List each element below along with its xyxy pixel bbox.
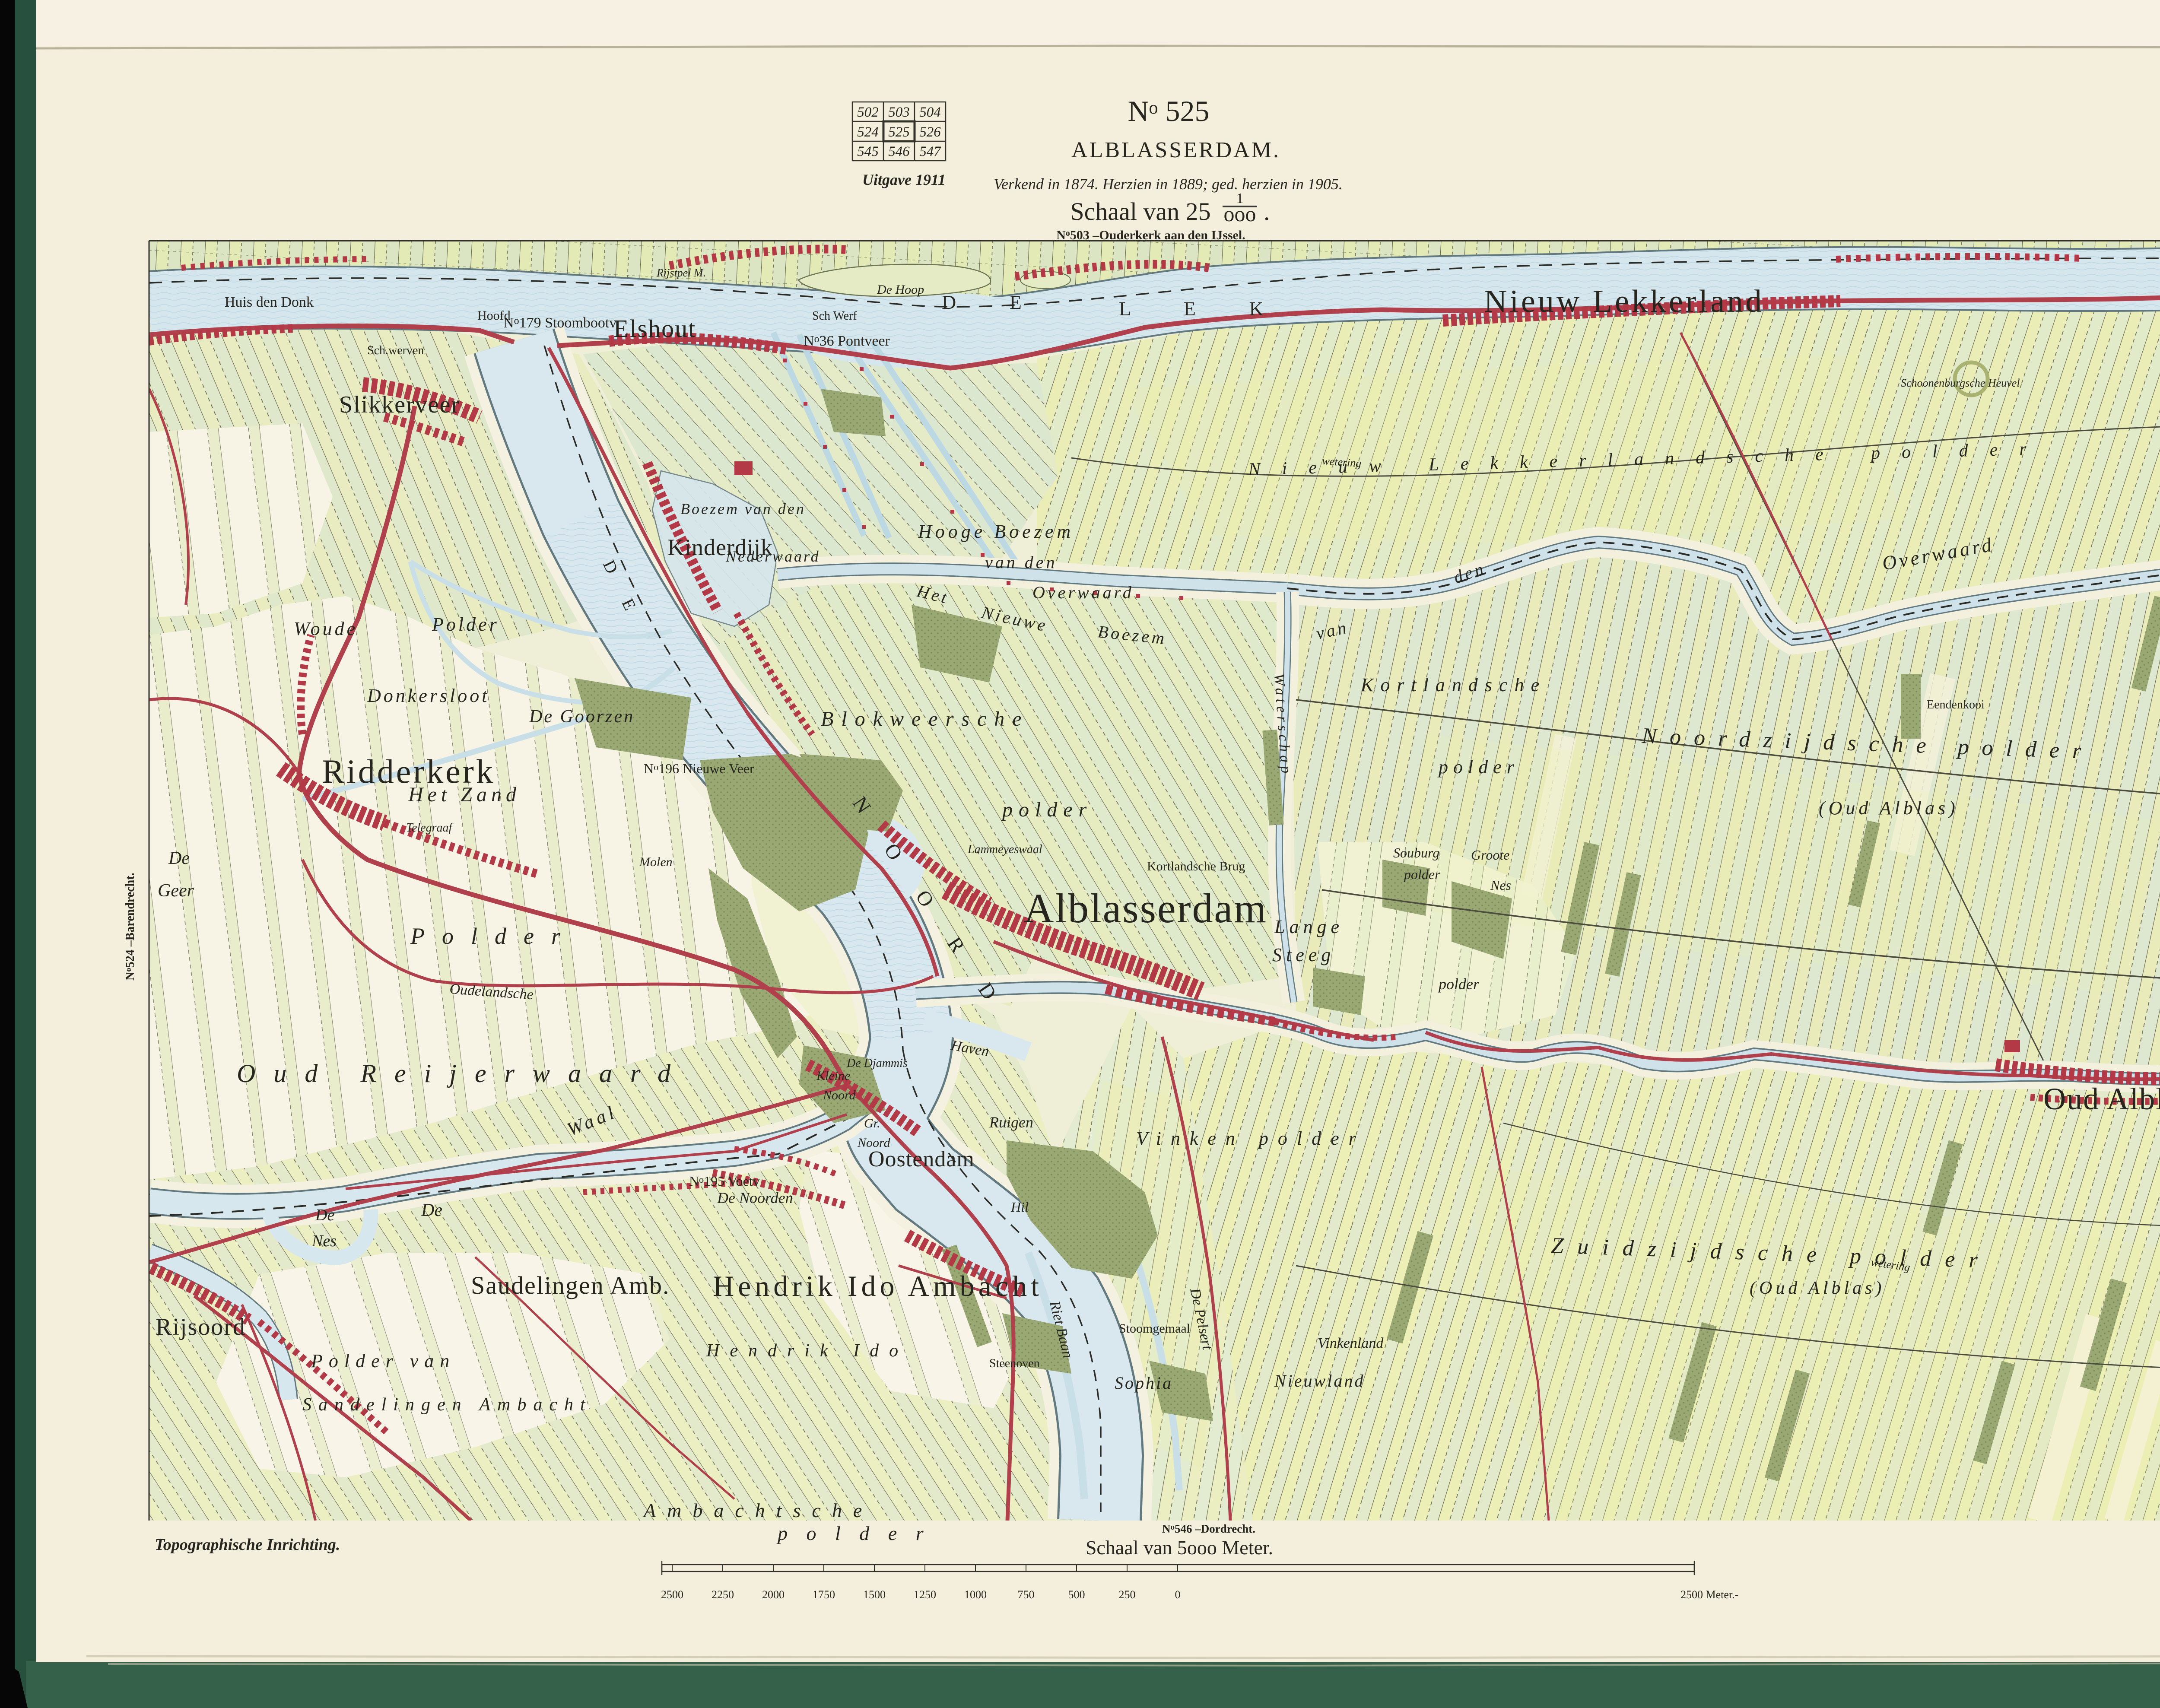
svg-text:Sophia: Sophia xyxy=(1115,1373,1173,1393)
svg-text:Steeg: Steeg xyxy=(1272,944,1335,965)
svg-text:Slikkerveer: Slikkerveer xyxy=(339,391,460,418)
svg-text:Saudelingen Amb.: Saudelingen Amb. xyxy=(471,1271,670,1299)
svg-text:Nes: Nes xyxy=(1490,877,1511,893)
svg-text:Hendrik Ido: Hendrik Ido xyxy=(706,1341,908,1361)
svg-text:Rijsoord: Rijsoord xyxy=(156,1314,246,1340)
svg-text:L E K: L E K xyxy=(1119,298,1288,320)
svg-text:Topographische Inrichting.: Topographische Inrichting. xyxy=(155,1536,340,1554)
svg-text:De Goorzen: De Goorzen xyxy=(529,707,635,727)
svg-text:Het Zand: Het Zand xyxy=(408,783,521,806)
svg-text:polder: polder xyxy=(1437,975,1480,993)
svg-text:Huis den Donk: Huis den Donk xyxy=(225,294,314,310)
svg-text:Vinkenland: Vinkenland xyxy=(1318,1335,1384,1351)
svg-text:Ruigen: Ruigen xyxy=(989,1114,1033,1131)
svg-text:ALBLASSERDAM.: ALBLASSERDAM. xyxy=(1071,138,1280,162)
svg-text:500: 500 xyxy=(1068,1588,1085,1601)
svg-text:No179 Stoombootv: No179 Stoombootv xyxy=(503,315,616,331)
svg-text:Polder: Polder xyxy=(410,923,578,949)
svg-text:524: 524 xyxy=(857,124,879,140)
svg-text:Geer: Geer xyxy=(158,881,194,901)
svg-text:Steenoven: Steenoven xyxy=(989,1357,1040,1370)
svg-text:504: 504 xyxy=(919,105,941,120)
svg-text:No546 –Dordrecht.: No546 –Dordrecht. xyxy=(1162,1522,1255,1535)
svg-text:Noord: Noord xyxy=(857,1136,891,1150)
svg-text:Woude: Woude xyxy=(294,618,358,639)
svg-text:De Djammis: De Djammis xyxy=(846,1057,908,1070)
svg-text:De: De xyxy=(168,848,190,868)
svg-text:No 525: No 525 xyxy=(1128,95,1209,127)
svg-text:Hoofd: Hoofd xyxy=(477,308,511,323)
svg-text:Noord: Noord xyxy=(823,1088,856,1102)
svg-text:p o l d e r: p o l d e r xyxy=(776,1522,931,1544)
svg-text:Lange: Lange xyxy=(1274,916,1344,937)
svg-text:Souburg: Souburg xyxy=(1393,845,1439,860)
svg-text:2500 Meter.-: 2500 Meter.- xyxy=(1680,1588,1738,1601)
svg-text:D E: D E xyxy=(942,291,1046,313)
svg-text:Gr.: Gr. xyxy=(864,1116,880,1130)
svg-text:Alblasserdam: Alblasserdam xyxy=(1024,885,1267,931)
svg-text:Schaal van 25: Schaal van 25 xyxy=(1070,197,1210,225)
svg-text:2250: 2250 xyxy=(712,1588,734,1601)
svg-text:Overwaard: Overwaard xyxy=(1032,583,1134,602)
svg-text:No196 Nieuwe Veer: No196 Nieuwe Veer xyxy=(644,761,754,776)
svg-text:ooo: ooo xyxy=(1224,202,1256,226)
svg-text:Nieuwland: Nieuwland xyxy=(1274,1371,1365,1391)
svg-text:van den: van den xyxy=(985,552,1058,572)
svg-text:Schaal van 5ooo Meter.: Schaal van 5ooo Meter. xyxy=(1086,1537,1273,1559)
svg-text:Stoomgemaal: Stoomgemaal xyxy=(1119,1321,1190,1336)
svg-text:750: 750 xyxy=(1018,1588,1035,1601)
svg-text:0: 0 xyxy=(1175,1588,1181,1601)
svg-text:(Oud Alblas): (Oud Alblas) xyxy=(1750,1278,1885,1298)
svg-text:Kortlandsche: Kortlandsche xyxy=(1360,674,1546,695)
svg-text:Hooge Boezem: Hooge Boezem xyxy=(918,521,1074,542)
svg-text:1250: 1250 xyxy=(914,1588,936,1601)
svg-text:Vinken polder: Vinken polder xyxy=(1136,1128,1366,1149)
svg-text:Lammeyeswaal: Lammeyeswaal xyxy=(967,843,1042,856)
svg-text:Groote: Groote xyxy=(1471,847,1509,863)
svg-text:De: De xyxy=(315,1206,334,1224)
svg-text:Polder: Polder xyxy=(432,614,499,635)
svg-text:polder: polder xyxy=(1403,867,1440,882)
svg-text:503: 503 xyxy=(888,105,910,120)
svg-text:No524 –Barendrecht.: No524 –Barendrecht. xyxy=(124,873,137,981)
svg-text:Oud Reijerwaard: Oud Reijerwaard xyxy=(237,1059,689,1088)
svg-text:Donkersloot: Donkersloot xyxy=(367,685,490,706)
svg-text:Rijstpel M.: Rijstpel M. xyxy=(656,267,706,279)
svg-text:547: 547 xyxy=(919,144,941,159)
svg-text:1500: 1500 xyxy=(863,1588,886,1601)
svg-text:Sch.werven: Sch.werven xyxy=(367,344,424,357)
svg-text:Molen: Molen xyxy=(639,855,673,869)
svg-text:1750: 1750 xyxy=(813,1588,835,1601)
svg-text:Ambachtsche: Ambachtsche xyxy=(642,1499,873,1521)
svg-text:Telegraaf: Telegraaf xyxy=(406,821,454,835)
svg-text:Eendenkooi: Eendenkooi xyxy=(1927,698,1985,711)
svg-text:Nes: Nes xyxy=(311,1232,337,1250)
svg-text:250: 250 xyxy=(1119,1588,1136,1601)
svg-text:Oud Alblas: Oud Alblas xyxy=(2043,1082,2160,1116)
svg-text:502: 502 xyxy=(857,105,879,120)
svg-text:Sch Werf: Sch Werf xyxy=(812,309,857,323)
svg-text:De Noorden: De Noorden xyxy=(717,1189,793,1206)
svg-text:Schoonenburgsche Heuvel: Schoonenburgsche Heuvel xyxy=(1901,377,2020,389)
svg-text:Oostendam: Oostendam xyxy=(868,1147,975,1171)
svg-text:525: 525 xyxy=(888,124,910,140)
svg-text:2500: 2500 xyxy=(661,1588,683,1601)
svg-text:Boezem van den: Boezem van den xyxy=(680,500,806,517)
svg-text:Kortlandsche Brug: Kortlandsche Brug xyxy=(1147,859,1245,873)
svg-text:Elshout: Elshout xyxy=(613,314,696,343)
svg-text:Nederwaard: Nederwaard xyxy=(725,548,820,565)
svg-text:526: 526 xyxy=(919,124,941,140)
svg-text:Verkend in 1874. Herzien in 18: Verkend in 1874. Herzien in 1889; ged. h… xyxy=(994,175,1343,193)
svg-text:(Oud Alblas): (Oud Alblas) xyxy=(1819,797,1959,819)
svg-text:De Hoop: De Hoop xyxy=(877,283,924,297)
svg-text:Kleine: Kleine xyxy=(816,1069,850,1083)
svg-text:Blokweersche: Blokweersche xyxy=(821,708,1029,730)
svg-text:Sandelingen Ambacht: Sandelingen Ambacht xyxy=(302,1395,592,1415)
svg-text:546: 546 xyxy=(888,144,910,159)
svg-text:Uitgave 1911: Uitgave 1911 xyxy=(862,171,946,188)
svg-text:Hendrik Ido Ambacht: Hendrik Ido Ambacht xyxy=(713,1270,1043,1302)
svg-text:2000: 2000 xyxy=(762,1588,785,1601)
svg-text:1000: 1000 xyxy=(964,1588,987,1601)
svg-text:Polder van: Polder van xyxy=(311,1350,455,1371)
svg-text:545: 545 xyxy=(857,144,879,159)
svg-text:Hil: Hil xyxy=(1010,1199,1029,1215)
svg-text:De: De xyxy=(421,1200,442,1220)
svg-text:Nieuw Lekkerland: Nieuw Lekkerland xyxy=(1484,284,1764,319)
svg-text:polder: polder xyxy=(1001,798,1093,821)
svg-text:polder: polder xyxy=(1437,756,1519,778)
svg-text:.: . xyxy=(1264,197,1270,225)
